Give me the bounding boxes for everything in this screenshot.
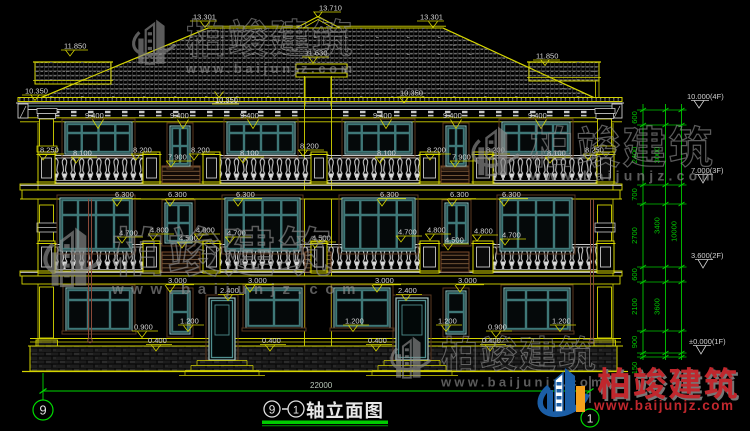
svg-text:22000: 22000 bbox=[310, 381, 333, 390]
svg-text:8.200: 8.200 bbox=[191, 146, 210, 155]
svg-text:3.600(2F): 3.600(2F) bbox=[691, 251, 724, 260]
svg-text:4.800: 4.800 bbox=[150, 226, 169, 235]
svg-text:±0.000(1F): ±0.000(1F) bbox=[689, 337, 726, 346]
svg-text:0.900: 0.900 bbox=[134, 323, 153, 332]
svg-text:8.100: 8.100 bbox=[240, 149, 259, 158]
svg-text:9.400: 9.400 bbox=[373, 111, 392, 120]
svg-text:6.300: 6.300 bbox=[450, 190, 469, 199]
svg-text:7.900: 7.900 bbox=[168, 153, 187, 162]
svg-text:10.000(4F): 10.000(4F) bbox=[687, 92, 724, 101]
svg-text:www.baijunjz.com: www.baijunjz.com bbox=[529, 167, 718, 183]
svg-text:11.850: 11.850 bbox=[64, 42, 86, 51]
svg-text:9.400: 9.400 bbox=[528, 111, 547, 120]
svg-text:3.000: 3.000 bbox=[375, 276, 394, 285]
svg-text:0.900: 0.900 bbox=[488, 323, 507, 332]
svg-text:600: 600 bbox=[630, 268, 639, 281]
svg-text:0.400: 0.400 bbox=[368, 336, 387, 345]
svg-text:900: 900 bbox=[630, 336, 639, 349]
svg-text:0.400: 0.400 bbox=[262, 336, 281, 345]
svg-text:6.300: 6.300 bbox=[380, 190, 399, 199]
svg-text:1.200: 1.200 bbox=[438, 317, 457, 326]
svg-text:6.300: 6.300 bbox=[502, 190, 521, 199]
svg-text:8.100: 8.100 bbox=[547, 149, 566, 158]
svg-text:13.710: 13.710 bbox=[319, 4, 342, 13]
svg-text:600: 600 bbox=[630, 111, 639, 124]
svg-text:9.400: 9.400 bbox=[85, 111, 104, 120]
svg-text:3600: 3600 bbox=[653, 298, 662, 315]
svg-text:4.500: 4.500 bbox=[445, 236, 464, 245]
svg-text:9.400: 9.400 bbox=[170, 111, 189, 120]
svg-text:3.000: 3.000 bbox=[458, 276, 477, 285]
svg-text:8.200: 8.200 bbox=[300, 142, 319, 151]
svg-text:6.300: 6.300 bbox=[115, 190, 134, 199]
svg-text:www.baijunjz.com: www.baijunjz.com bbox=[185, 61, 356, 76]
svg-text:www.baijunjz.com: www.baijunjz.com bbox=[111, 281, 363, 298]
svg-text:7.900: 7.900 bbox=[452, 153, 471, 162]
svg-text:150: 150 bbox=[630, 362, 639, 375]
svg-text:700: 700 bbox=[630, 188, 639, 201]
svg-text:13.301: 13.301 bbox=[420, 13, 443, 22]
svg-text:1.200: 1.200 bbox=[180, 317, 199, 326]
svg-text:2.400: 2.400 bbox=[398, 286, 417, 295]
svg-text:8.100: 8.100 bbox=[377, 149, 396, 158]
svg-text:1.200: 1.200 bbox=[345, 317, 364, 326]
svg-text:2700: 2700 bbox=[630, 227, 639, 244]
svg-text:4.700: 4.700 bbox=[502, 231, 521, 240]
svg-text:1.200: 1.200 bbox=[552, 317, 571, 326]
svg-text:0.400: 0.400 bbox=[148, 336, 167, 345]
svg-text:6.300: 6.300 bbox=[168, 190, 187, 199]
svg-text:4.700: 4.700 bbox=[398, 228, 417, 237]
svg-text:8.100: 8.100 bbox=[73, 149, 92, 158]
svg-text:2100: 2100 bbox=[630, 298, 639, 315]
svg-text:8.200: 8.200 bbox=[427, 146, 446, 155]
svg-text:11.850: 11.850 bbox=[536, 52, 558, 61]
svg-text:10.350: 10.350 bbox=[400, 89, 423, 98]
svg-text:6.300: 6.300 bbox=[236, 190, 255, 199]
svg-text:8.200: 8.200 bbox=[133, 146, 152, 155]
svg-text:4.800: 4.800 bbox=[427, 226, 446, 235]
svg-text:9.400: 9.400 bbox=[443, 111, 462, 120]
svg-text:3400: 3400 bbox=[653, 217, 662, 234]
svg-text:www.baijunjz.com: www.baijunjz.com bbox=[593, 398, 735, 413]
svg-text:10.350: 10.350 bbox=[25, 87, 48, 96]
svg-text:9.400: 9.400 bbox=[240, 111, 259, 120]
svg-text:10000: 10000 bbox=[670, 221, 679, 242]
svg-text:4.800: 4.800 bbox=[474, 227, 493, 236]
svg-text:8.250: 8.250 bbox=[40, 146, 59, 155]
